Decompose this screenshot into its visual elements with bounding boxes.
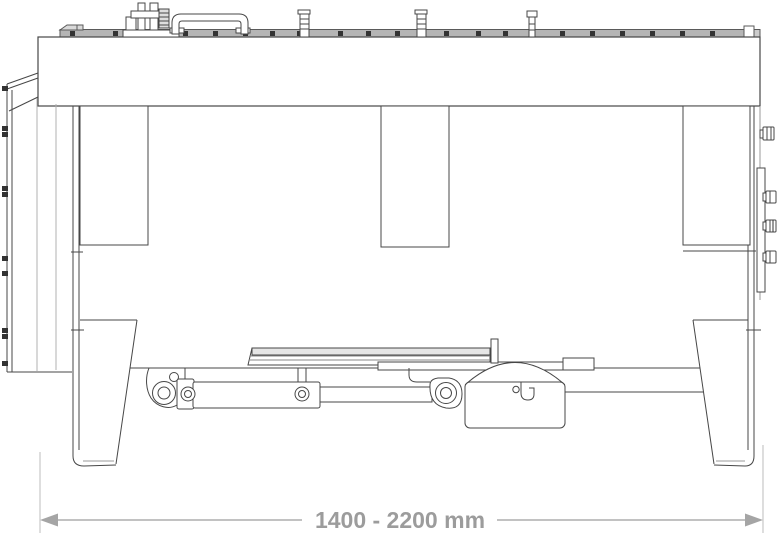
hex-bolt (760, 127, 774, 140)
left-skid (73, 320, 137, 466)
right-skid (693, 320, 754, 466)
left-side-panel (2, 73, 72, 372)
dimension-arrow-right-icon (745, 514, 763, 527)
mounting-pillar (381, 106, 449, 247)
hex-bolt (763, 220, 776, 232)
technical-drawing: 1400 - 2200 mm (0, 0, 781, 536)
cylinder-rod (320, 387, 432, 402)
threaded-stud (298, 10, 310, 37)
mounting-pillars (80, 106, 756, 251)
drawing-canvas: 1400 - 2200 mm (0, 0, 781, 536)
hex-bolt (763, 251, 776, 263)
threaded-stud (415, 10, 427, 37)
mounting-pillar (80, 106, 148, 245)
clamp-hatch-block (159, 9, 169, 28)
hydraulic-cylinder (147, 368, 462, 409)
grease-pin (527, 11, 537, 37)
hex-bolt (763, 191, 776, 203)
dimension-arrow-left-icon (40, 514, 58, 527)
mounting-pillar (683, 106, 750, 245)
dimension-label: 1400 - 2200 mm (315, 507, 485, 533)
dimension-annotation: 1400 - 2200 mm (40, 445, 763, 533)
top-beam (38, 37, 760, 106)
hook-box-bracket (465, 363, 565, 429)
